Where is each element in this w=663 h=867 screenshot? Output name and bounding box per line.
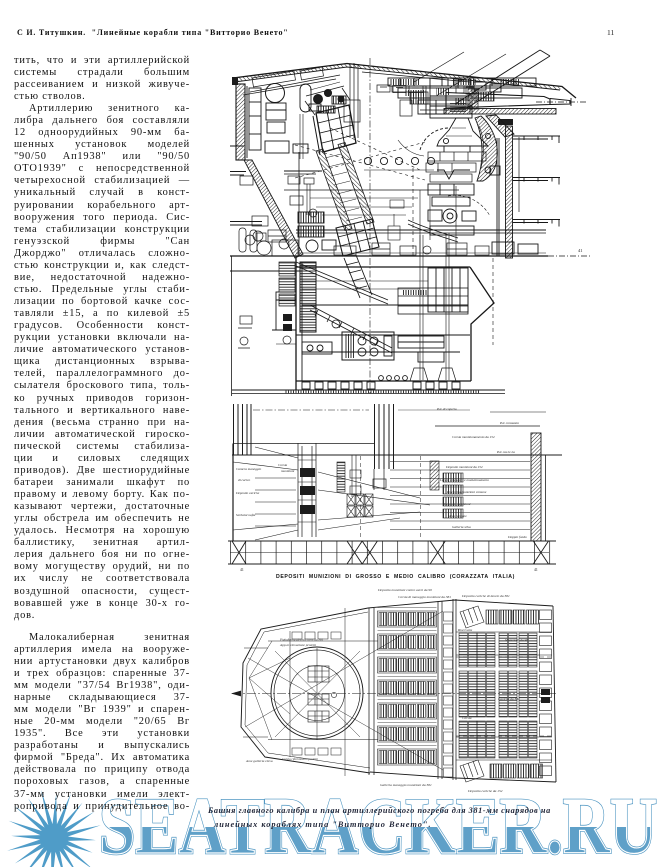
svg-text:SEATRACKER.RU: SEATRACKER.RU xyxy=(99,783,657,867)
